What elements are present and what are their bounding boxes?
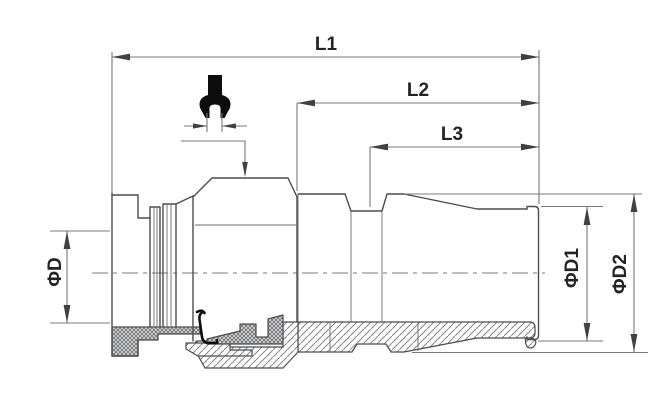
- dimension-label-l1: L1: [315, 34, 338, 55]
- release-wedge-section: [207, 315, 283, 344]
- body-section-hatch: [186, 322, 536, 368]
- dimension-l2: L2: [297, 80, 539, 191]
- arrowhead: [193, 123, 207, 128]
- arrowhead: [64, 231, 71, 249]
- arrowhead: [112, 54, 130, 61]
- wrench-callout: [181, 75, 248, 177]
- rib-stack: [150, 196, 193, 327]
- arrowhead: [584, 323, 591, 341]
- dimension-label-l2: L2: [407, 80, 429, 101]
- technical-drawing-canvas: L1 L2 L3 ΦD ΦD1: [0, 0, 668, 419]
- dimension-l1: L1: [112, 34, 539, 204]
- wrench-size-arrows: [184, 113, 247, 132]
- wrench-icon: [200, 75, 231, 118]
- collet-section: [186, 343, 252, 356]
- arrowhead: [222, 123, 236, 128]
- leader-arrow: [181, 141, 248, 177]
- fitting-technical-drawing: L1 L2 L3 ΦD ΦD1: [0, 0, 668, 419]
- arrowhead: [242, 162, 248, 177]
- dimension-label-l3: L3: [441, 124, 463, 145]
- dimension-label-d1: ΦD1: [562, 248, 583, 288]
- arrowhead: [521, 100, 539, 107]
- arrowhead: [64, 305, 71, 323]
- arrowhead: [631, 194, 638, 212]
- dimension-d1: ΦD1: [538, 207, 603, 342]
- dimension-label-d: ΦD: [45, 257, 66, 286]
- arrowhead: [521, 54, 539, 61]
- arrowhead: [584, 207, 591, 225]
- arrowhead: [370, 144, 388, 151]
- dimension-d: ΦD: [45, 231, 110, 323]
- arrowhead: [631, 334, 638, 352]
- flange-section: [112, 327, 200, 356]
- arrowhead: [521, 144, 539, 151]
- arrowhead: [297, 100, 315, 107]
- dimension-label-d2: ΦD2: [610, 254, 631, 294]
